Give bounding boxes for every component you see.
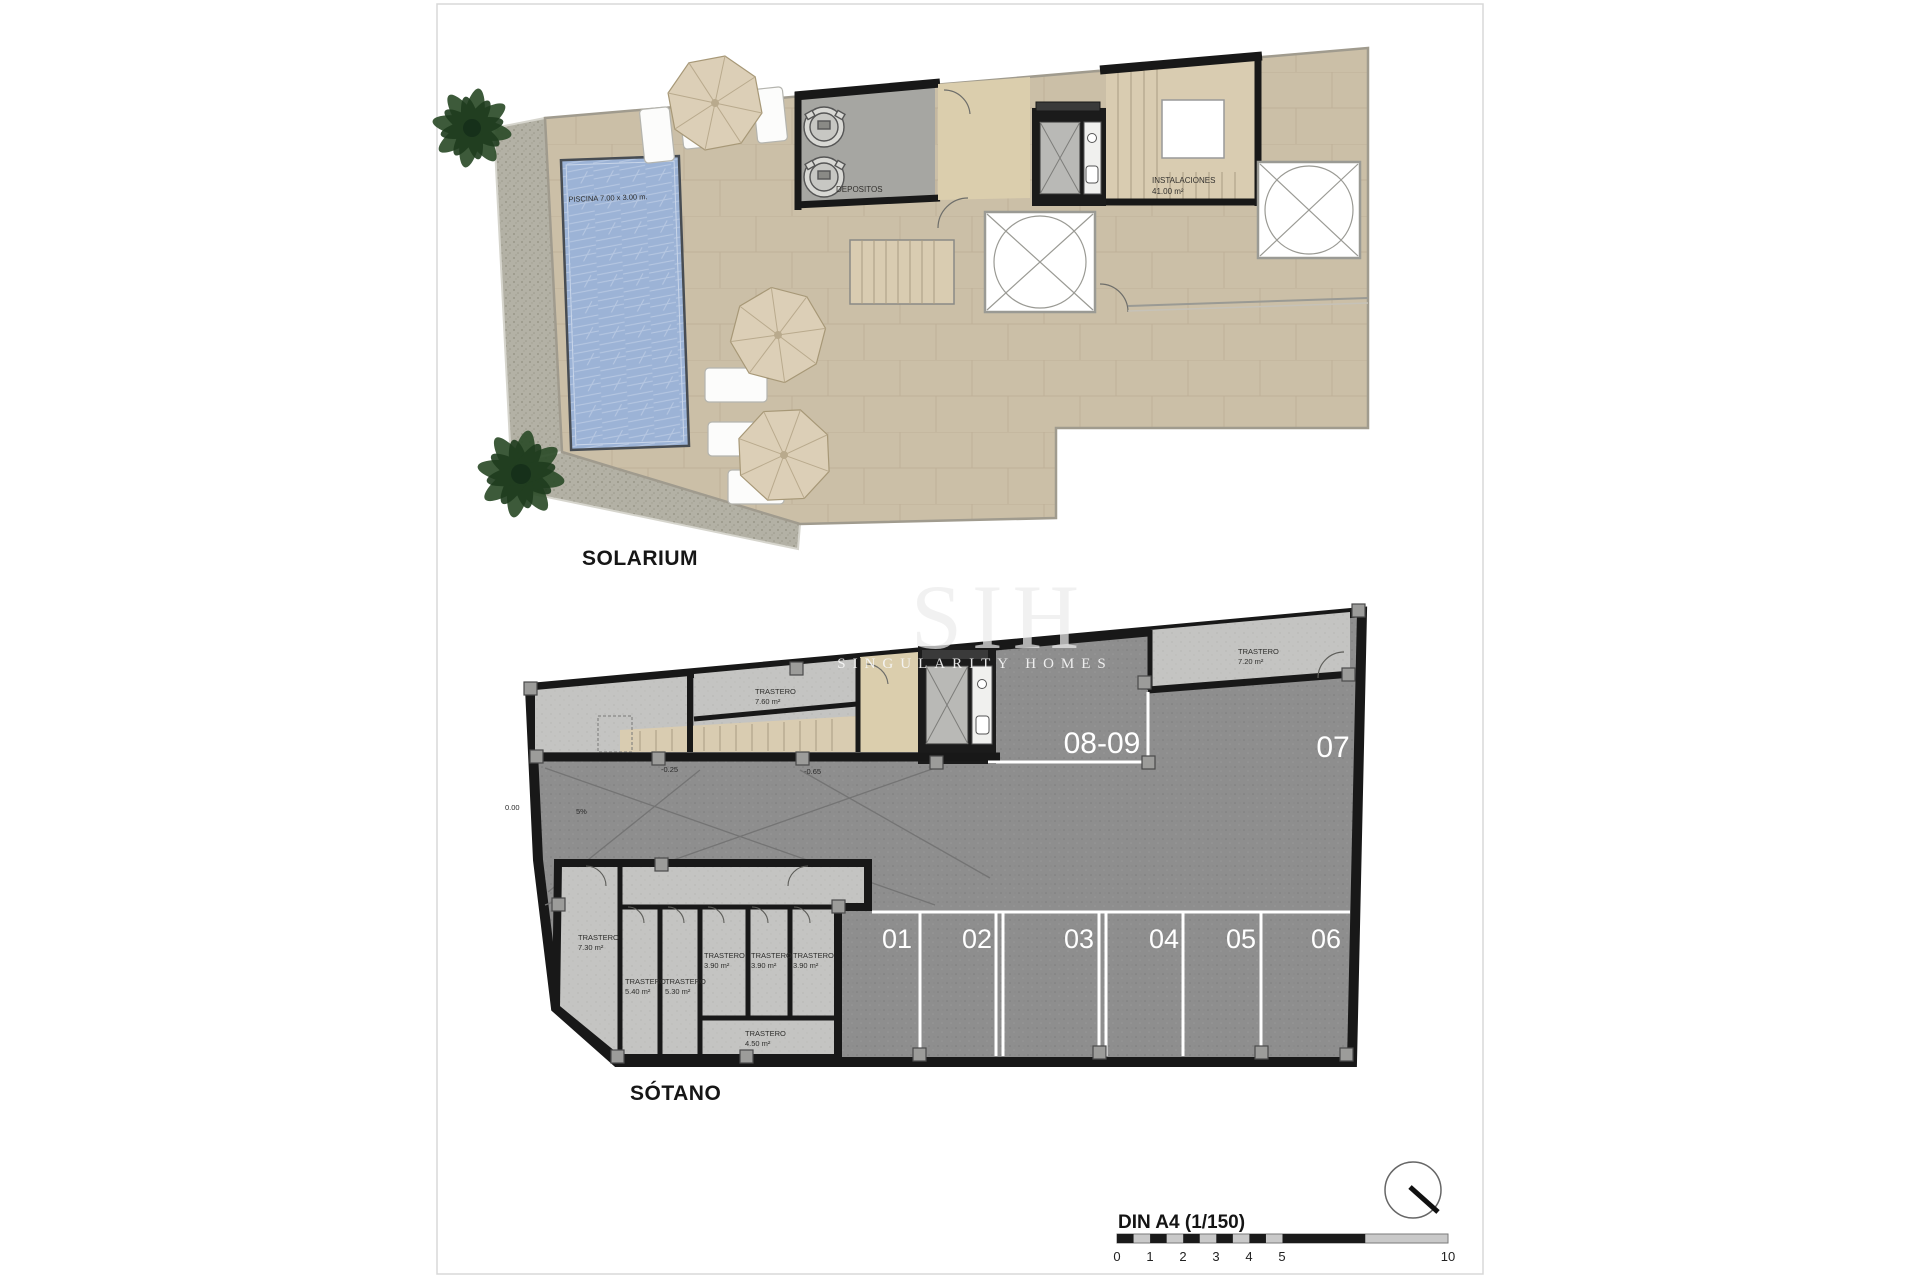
storage-name: TRASTERO — [1238, 647, 1279, 656]
instalaciones-area-label: 41.00 m² — [1152, 187, 1184, 196]
solarium-plan: PISCINA 7.00 x 3.00 m. PISCINA 85.80 m² … — [431, 46, 1368, 570]
storage-area: 3.90 m² — [751, 961, 777, 970]
instalaciones-label: INSTALACIONES — [1152, 176, 1215, 185]
watermark-logo: SIH — [911, 566, 1089, 668]
storage-area: 7.30 m² — [578, 943, 604, 952]
level-label: 0.00 — [505, 803, 520, 812]
storage-area: 3.90 m² — [793, 961, 819, 970]
scale-tick: 4 — [1245, 1249, 1252, 1264]
watermark-name: SINGULARITY HOMES — [837, 656, 1113, 672]
sink-icon — [1088, 134, 1097, 143]
scale-tick: 3 — [1212, 1249, 1219, 1264]
courtyard-skylight — [985, 212, 1095, 312]
stair-skylight — [1162, 100, 1224, 158]
floorplan-drawing: PISCINA 7.00 x 3.00 m. PISCINA 85.80 m² … — [0, 0, 1920, 1280]
storage-area: 5.40 m² — [625, 987, 651, 996]
north-indicator-icon — [1385, 1162, 1441, 1218]
sotano-title: SÓTANO — [630, 1081, 721, 1105]
sink-icon — [978, 680, 987, 689]
toilet-icon — [1086, 166, 1098, 183]
storage-area: 7.60 m² — [755, 697, 781, 706]
storage-name: TRASTERO — [751, 951, 792, 960]
solarium-title: SOLARIUM — [582, 547, 698, 570]
scale-tick: 5 — [1278, 1249, 1285, 1264]
deck-stair — [850, 240, 954, 304]
parking-bay-04: 04 — [1149, 924, 1179, 954]
level-label: -0.65 — [804, 767, 821, 776]
level-label: -0.25 — [661, 765, 678, 774]
storage-name: TRASTERO — [755, 687, 796, 696]
storage-name: TRASTERO — [625, 977, 666, 986]
toilet-icon — [976, 716, 989, 734]
depositos-label: DEPOSITOS — [836, 185, 883, 194]
sotano-plan: -0.25 -0.65 0.00 5% 08-09 07 01 02 03 04… — [505, 604, 1365, 1105]
storage-area: 4.50 m² — [745, 1039, 771, 1048]
courtyard-skylight — [1258, 162, 1360, 258]
storage-area: 7.20 m² — [1238, 657, 1264, 666]
parking-bay-02: 02 — [962, 924, 992, 954]
storage-area: 3.90 m² — [704, 961, 730, 970]
scale-tick: 10 — [1441, 1249, 1455, 1264]
parking-bay-05: 05 — [1226, 924, 1256, 954]
elevator — [1032, 102, 1106, 206]
slope-label: 5% — [576, 807, 587, 816]
scale-bar: DIN A4 (1/150) 0 1 2 3 4 5 10 — [1113, 1212, 1455, 1264]
storage-name: TRASTERO — [745, 1029, 786, 1038]
core-lobby — [938, 77, 1030, 200]
scale-tick: 1 — [1146, 1249, 1153, 1264]
parking-bay-03: 03 — [1064, 924, 1094, 954]
scale-label: DIN A4 (1/150) — [1118, 1212, 1245, 1233]
scale-tick: 2 — [1179, 1249, 1186, 1264]
parking-bay-01: 01 — [882, 924, 912, 954]
storage-name: TRASTERO — [665, 977, 706, 986]
parking-bay-07: 07 — [1316, 731, 1349, 764]
scale-tick: 0 — [1113, 1249, 1120, 1264]
pool: PISCINA 7.00 x 3.00 m. — [561, 156, 689, 450]
parking-bay-0809: 08-09 — [1064, 727, 1141, 760]
storage-name: TRASTERO — [793, 951, 834, 960]
watermark: SIH SINGULARITY HOMES — [837, 566, 1113, 672]
storage-area: 5.30 m² — [665, 987, 691, 996]
floorplan-sheet: PISCINA 7.00 x 3.00 m. PISCINA 85.80 m² … — [0, 0, 1920, 1280]
storage-name: TRASTERO — [578, 933, 619, 942]
water-tank-icon — [804, 107, 845, 147]
storage-name: TRASTERO — [704, 951, 745, 960]
parking-bay-06: 06 — [1311, 924, 1341, 954]
